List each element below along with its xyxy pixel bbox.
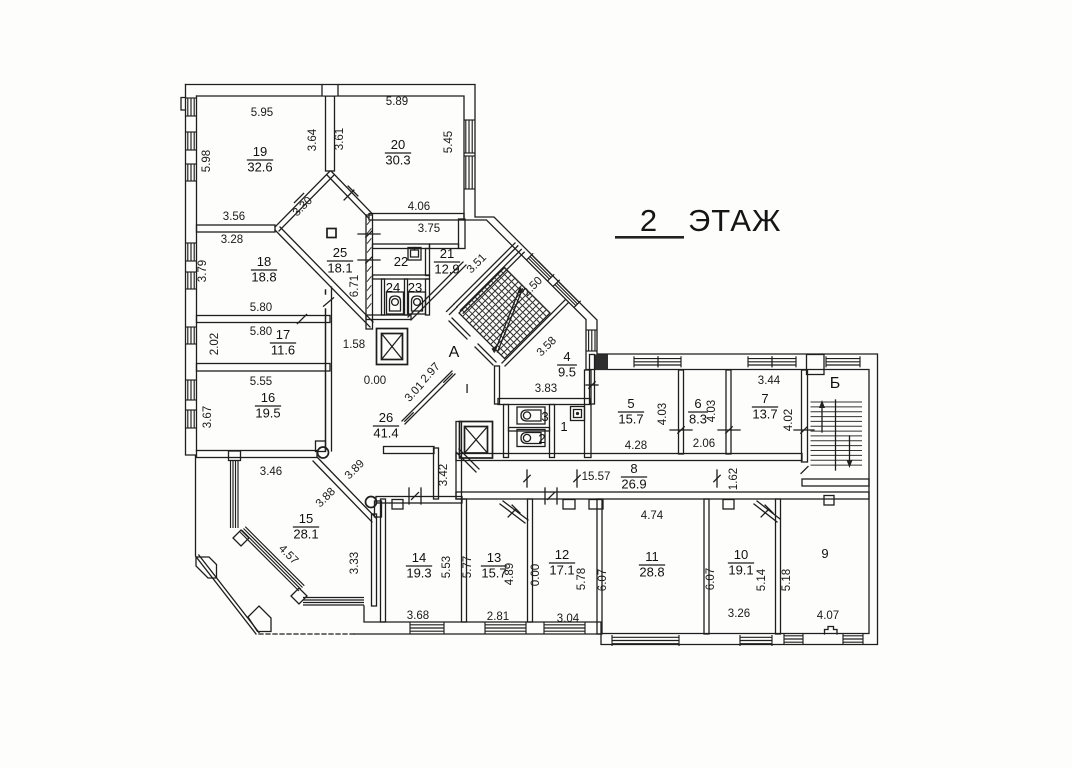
svg-text:15: 15 — [299, 511, 313, 526]
svg-text:3.79: 3.79 — [197, 260, 209, 282]
svg-text:32.6: 32.6 — [247, 160, 272, 175]
svg-text:25: 25 — [333, 245, 347, 260]
svg-text:3.56: 3.56 — [223, 211, 245, 223]
svg-text:28.1: 28.1 — [293, 527, 318, 542]
svg-text:5.95: 5.95 — [251, 107, 273, 119]
svg-text:13.7: 13.7 — [752, 407, 777, 422]
svg-text:5.45: 5.45 — [443, 131, 455, 153]
svg-text:15.7: 15.7 — [618, 412, 643, 427]
svg-text:5.18: 5.18 — [781, 569, 793, 591]
svg-text:3.83: 3.83 — [535, 383, 557, 395]
svg-text:1: 1 — [560, 419, 567, 434]
svg-text:8: 8 — [630, 461, 637, 476]
svg-text:18.1: 18.1 — [327, 261, 352, 276]
svg-text:5.14: 5.14 — [756, 568, 768, 591]
svg-text:4.07: 4.07 — [817, 610, 839, 622]
svg-text:5.77: 5.77 — [462, 556, 474, 578]
svg-text:20: 20 — [391, 137, 405, 152]
svg-text:5.89: 5.89 — [386, 96, 408, 108]
svg-text:3.28: 3.28 — [221, 234, 243, 246]
svg-text:15.7: 15.7 — [481, 566, 506, 581]
svg-text:4: 4 — [563, 349, 570, 364]
svg-text:3.33: 3.33 — [349, 552, 361, 574]
svg-text:5.80: 5.80 — [250, 302, 272, 314]
svg-text:3.42: 3.42 — [438, 464, 450, 486]
svg-text:5.98: 5.98 — [201, 150, 213, 172]
svg-text:3.61: 3.61 — [334, 128, 346, 150]
svg-text:9.5: 9.5 — [558, 365, 576, 380]
svg-text:41.4: 41.4 — [373, 426, 398, 441]
svg-text:15.57: 15.57 — [582, 471, 611, 483]
svg-text:4.28: 4.28 — [625, 440, 647, 452]
svg-text:2.02: 2.02 — [209, 333, 221, 355]
svg-text:3.04: 3.04 — [557, 613, 580, 625]
svg-text:18.8: 18.8 — [251, 270, 276, 285]
svg-text:12.9: 12.9 — [434, 262, 459, 277]
svg-text:2.06: 2.06 — [693, 438, 715, 450]
svg-text:4.02: 4.02 — [783, 409, 795, 431]
svg-text:14: 14 — [412, 550, 426, 565]
svg-text:17: 17 — [276, 327, 290, 342]
svg-text:I: I — [465, 381, 469, 396]
svg-text:18: 18 — [257, 254, 271, 269]
svg-text:4.03: 4.03 — [657, 403, 669, 425]
svg-text:1.62: 1.62 — [728, 468, 740, 490]
svg-text:5.78: 5.78 — [576, 568, 588, 590]
svg-text:23: 23 — [408, 280, 422, 295]
svg-text:6.71: 6.71 — [349, 275, 361, 297]
svg-text:5.53: 5.53 — [441, 556, 453, 578]
svg-text:26.9: 26.9 — [621, 477, 646, 492]
svg-text:6: 6 — [694, 396, 701, 411]
svg-text:ЭТАЖ: ЭТАЖ — [688, 203, 782, 238]
svg-text:13: 13 — [487, 550, 501, 565]
svg-text:0.00: 0.00 — [364, 375, 386, 387]
svg-text:3.75: 3.75 — [418, 223, 440, 235]
svg-text:3: 3 — [541, 409, 548, 424]
svg-text:24: 24 — [386, 280, 400, 295]
svg-text:30.3: 30.3 — [385, 153, 410, 168]
svg-text:2: 2 — [640, 203, 658, 238]
svg-text:5.80: 5.80 — [250, 326, 272, 338]
svg-text:9: 9 — [821, 546, 828, 561]
svg-text:3.67: 3.67 — [202, 406, 214, 428]
svg-text:4.74: 4.74 — [641, 510, 664, 522]
svg-text:3.68: 3.68 — [407, 610, 429, 622]
svg-text:16: 16 — [261, 390, 275, 405]
svg-text:22: 22 — [394, 254, 408, 269]
svg-text:А: А — [449, 344, 460, 361]
svg-text:10: 10 — [734, 547, 748, 562]
svg-text:3.64: 3.64 — [307, 128, 319, 151]
svg-text:19.5: 19.5 — [255, 406, 280, 421]
svg-text:8.3: 8.3 — [689, 412, 707, 427]
svg-text:6.07: 6.07 — [597, 569, 609, 591]
svg-text:26: 26 — [379, 410, 393, 425]
svg-text:3.44: 3.44 — [758, 375, 781, 387]
svg-text:6.07: 6.07 — [705, 568, 717, 590]
svg-text:11.6: 11.6 — [271, 343, 295, 358]
svg-text:2.81: 2.81 — [487, 611, 509, 623]
svg-text:21: 21 — [440, 246, 454, 261]
svg-text:2: 2 — [538, 431, 545, 446]
svg-text:19.1: 19.1 — [728, 563, 753, 578]
svg-text:3.46: 3.46 — [260, 466, 282, 478]
svg-text:17.1: 17.1 — [549, 563, 574, 578]
svg-text:3.26: 3.26 — [728, 608, 750, 620]
svg-text:4.89: 4.89 — [504, 563, 516, 585]
svg-text:1.58: 1.58 — [343, 339, 365, 351]
svg-text:28.8: 28.8 — [639, 565, 664, 580]
svg-text:11: 11 — [645, 549, 659, 564]
svg-text:19.3: 19.3 — [406, 566, 431, 581]
svg-text:0.00: 0.00 — [530, 564, 542, 586]
svg-text:7: 7 — [761, 391, 768, 406]
svg-text:Б: Б — [830, 375, 841, 392]
svg-text:19: 19 — [253, 144, 267, 159]
svg-text:12: 12 — [555, 547, 569, 562]
svg-text:5: 5 — [627, 396, 634, 411]
svg-text:4.03: 4.03 — [706, 400, 718, 422]
svg-text:4.06: 4.06 — [408, 201, 430, 213]
svg-text:5.55: 5.55 — [250, 376, 272, 388]
